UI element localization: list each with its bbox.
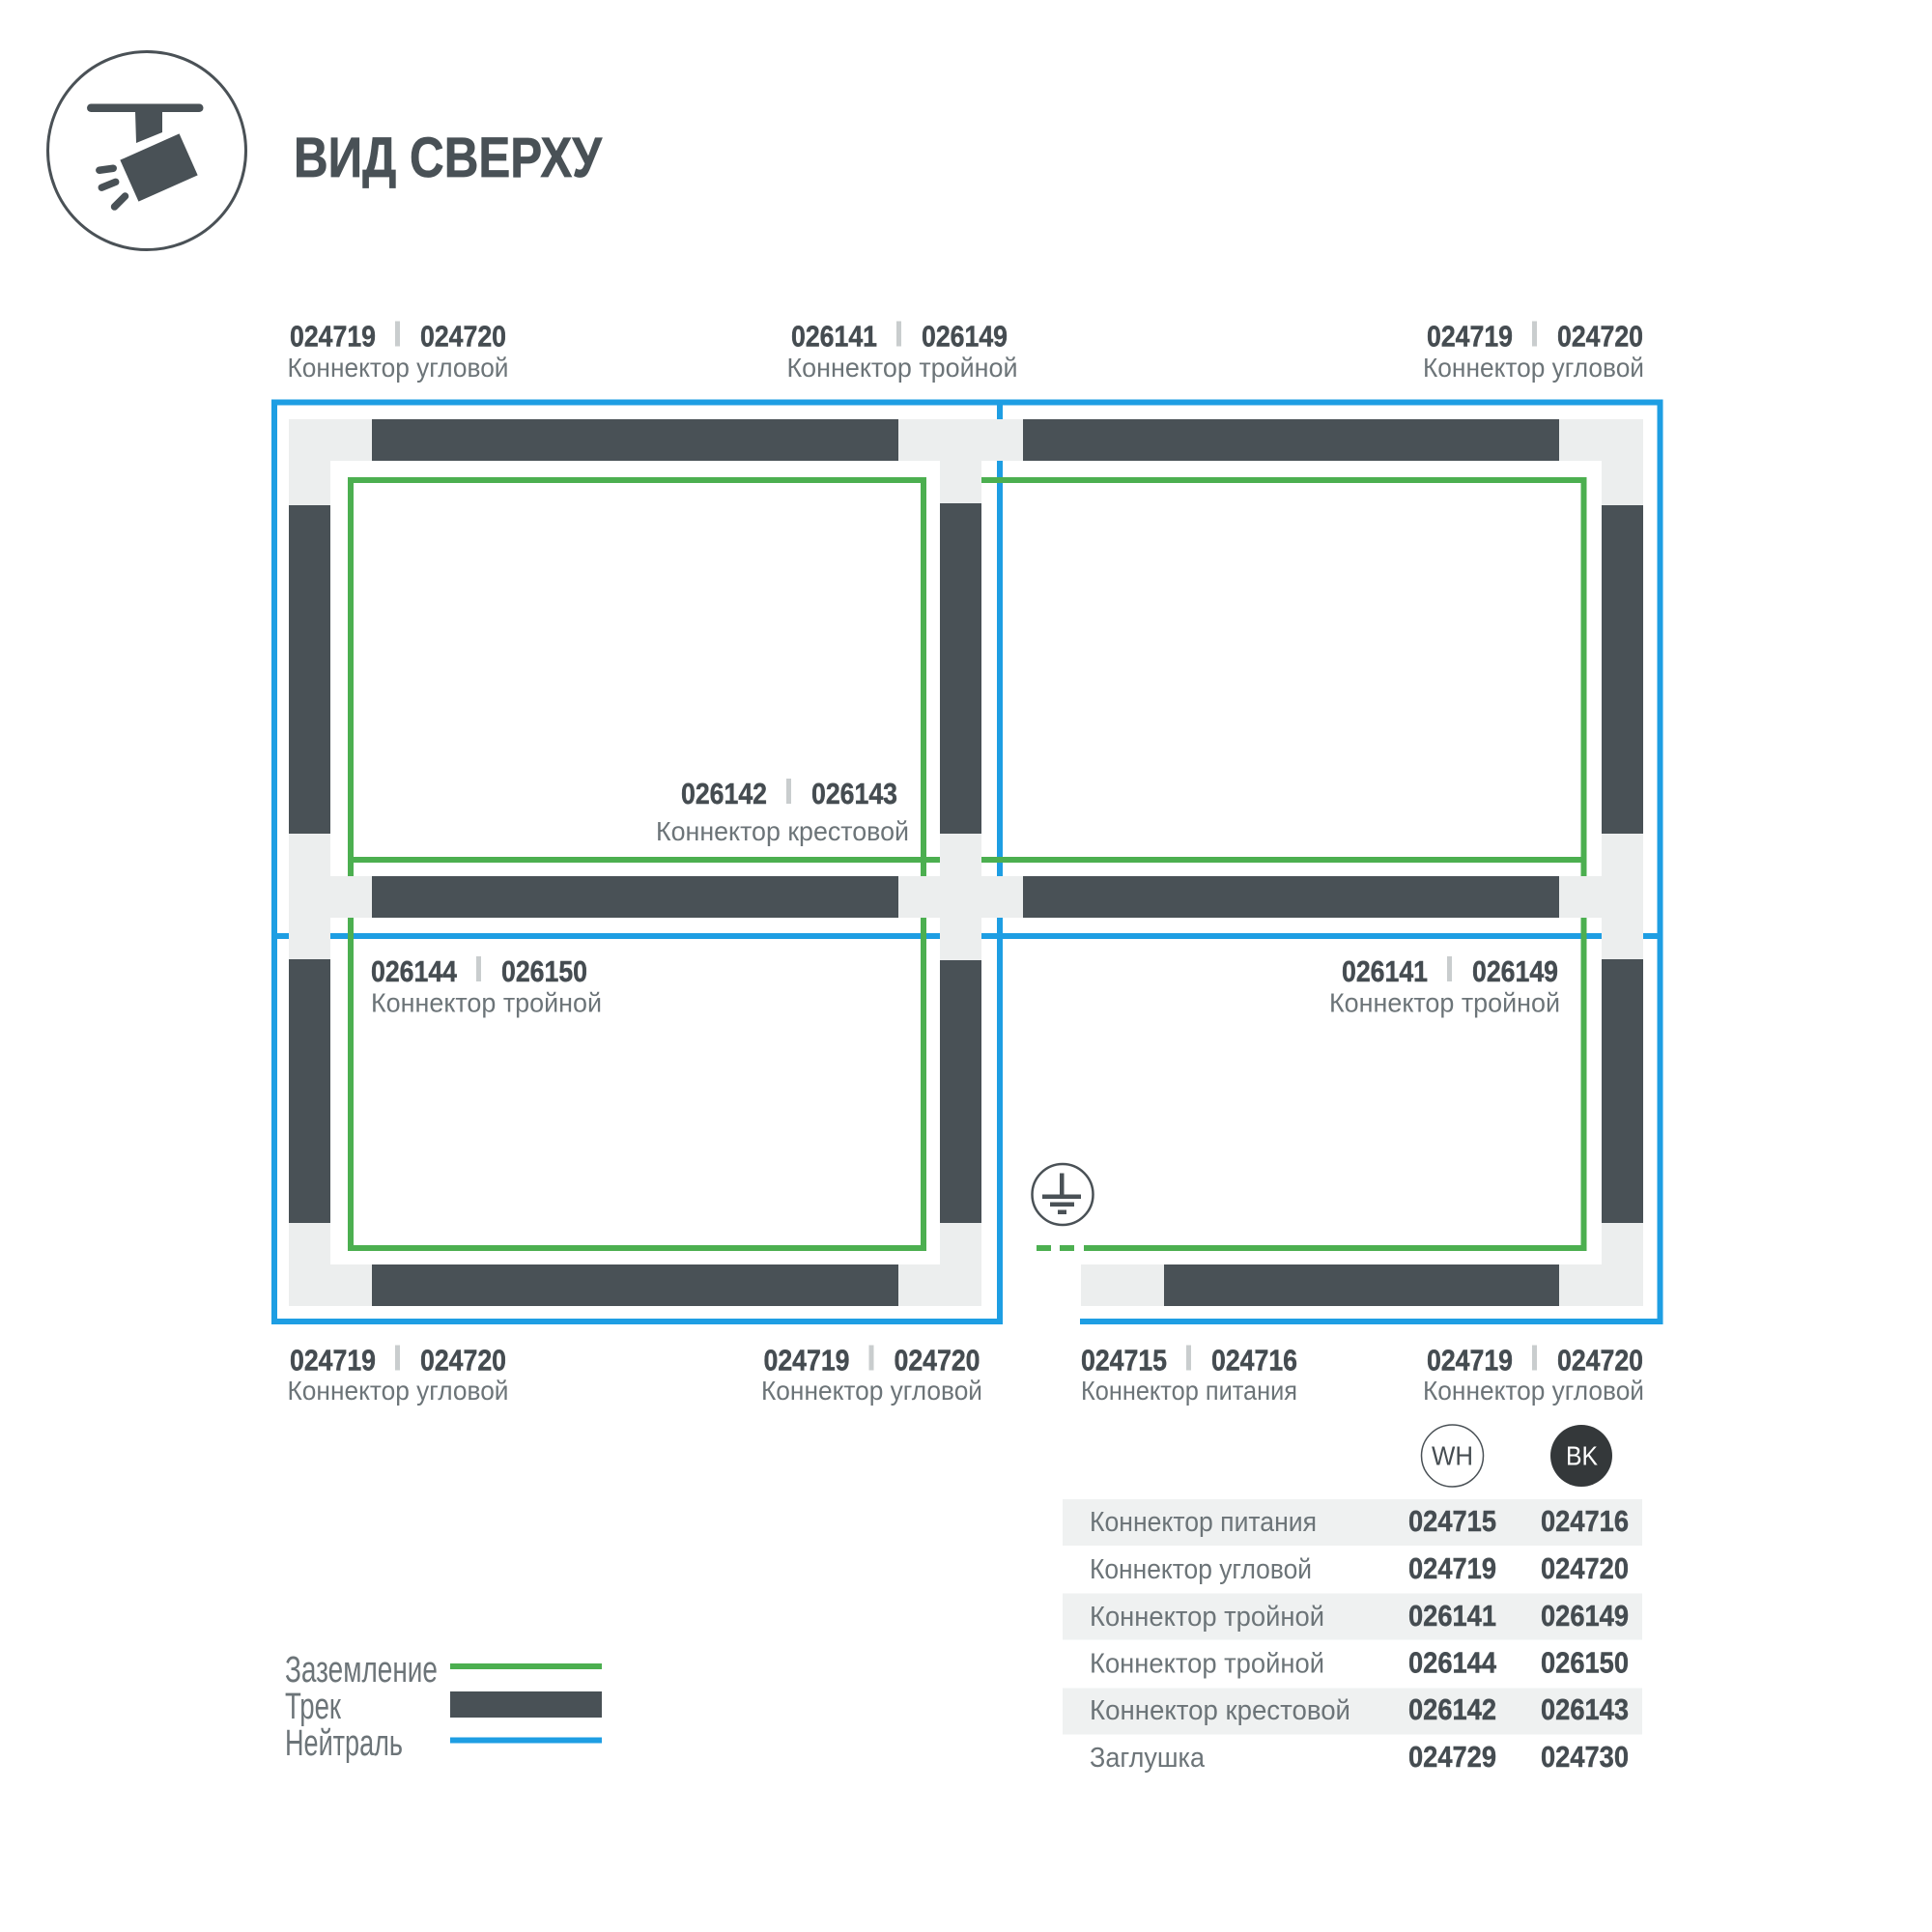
svg-text:024720: 024720 [420,320,506,354]
svg-text:Коннектор угловой: Коннектор угловой [1423,353,1644,383]
svg-text:Заглушка: Заглушка [1090,1743,1206,1774]
svg-text:026149: 026149 [1541,1599,1629,1633]
svg-text:Коннектор крестовой: Коннектор крестовой [656,816,909,846]
svg-text:024719: 024719 [1408,1551,1496,1585]
svg-text:ВИД СВЕРХУ: ВИД СВЕРХУ [294,127,603,189]
svg-text:Коннектор тройной: Коннектор тройной [1329,988,1560,1018]
svg-text:Коннектор угловой: Коннектор угловой [761,1376,982,1406]
svg-text:Коннектор тройной: Коннектор тройной [787,353,1018,383]
svg-text:024719: 024719 [764,1344,850,1378]
svg-text:024716: 024716 [1541,1504,1629,1538]
svg-text:026143: 026143 [1541,1692,1629,1726]
svg-text:026144: 026144 [371,954,458,988]
svg-text:024719: 024719 [1427,1344,1513,1378]
svg-text:024730: 024730 [1541,1740,1629,1774]
svg-text:024720: 024720 [1557,1344,1643,1378]
svg-text:024729: 024729 [1408,1740,1496,1774]
svg-text:024716: 024716 [1211,1344,1297,1378]
svg-text:Коннектор питания: Коннектор питания [1081,1376,1297,1406]
svg-text:Коннектор тройной: Коннектор тройной [371,988,602,1018]
svg-text:024715: 024715 [1408,1504,1496,1538]
svg-text:026141: 026141 [1342,954,1428,988]
svg-text:Коннектор угловой: Коннектор угловой [288,1376,509,1406]
svg-text:Коннектор тройной: Коннектор тройной [1090,1602,1324,1633]
svg-text:026141: 026141 [1408,1599,1496,1633]
svg-text:Коннектор питания: Коннектор питания [1090,1507,1317,1538]
svg-text:026142: 026142 [1408,1692,1496,1726]
svg-text:026149: 026149 [1472,954,1558,988]
svg-text:Заземление: Заземление [285,1650,438,1690]
svg-text:024719: 024719 [290,1344,376,1378]
svg-text:026141: 026141 [791,320,877,354]
svg-text:024720: 024720 [1557,320,1643,354]
svg-text:026143: 026143 [811,777,897,810]
svg-text:Коннектор угловой: Коннектор угловой [1423,1376,1644,1406]
svg-text:024720: 024720 [1541,1551,1629,1585]
svg-text:BK: BK [1566,1441,1598,1471]
svg-text:024715: 024715 [1081,1344,1167,1378]
svg-text:026150: 026150 [501,954,587,988]
svg-text:024720: 024720 [895,1344,980,1378]
svg-text:Коннектор крестовой: Коннектор крестовой [1090,1695,1350,1726]
svg-text:024719: 024719 [1427,320,1513,354]
svg-text:026150: 026150 [1541,1646,1629,1680]
svg-text:026149: 026149 [922,320,1008,354]
svg-text:Коннектор угловой: Коннектор угловой [288,353,509,383]
svg-text:Коннектор тройной: Коннектор тройной [1090,1649,1324,1680]
svg-text:Коннектор угловой: Коннектор угловой [1090,1554,1312,1585]
svg-text:Трек: Трек [285,1687,341,1727]
svg-text:Нейтраль: Нейтраль [285,1723,403,1764]
svg-text:WH: WH [1432,1441,1473,1471]
svg-text:024719: 024719 [290,320,376,354]
svg-text:026144: 026144 [1408,1646,1497,1680]
svg-text:026142: 026142 [681,777,767,810]
svg-text:024720: 024720 [420,1344,506,1378]
